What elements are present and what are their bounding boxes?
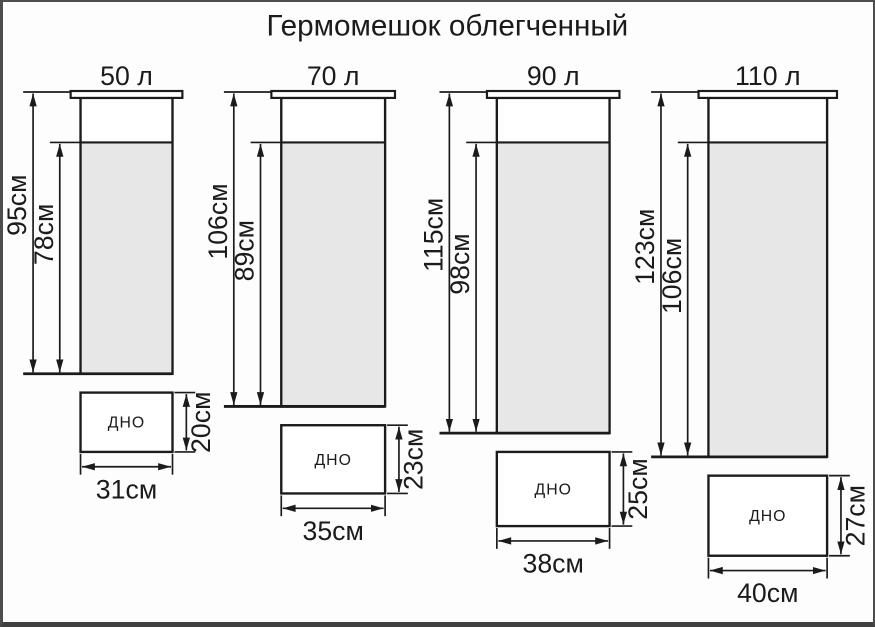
width-dim-label: 40см — [737, 578, 798, 608]
inner-height-label: 78см — [29, 204, 59, 265]
volume-label: 50 л — [100, 61, 153, 91]
bottom-face-label: ДНО — [108, 415, 145, 432]
depth-dim-label: 20см — [186, 392, 216, 453]
outer-height-label: 123см — [630, 209, 660, 285]
outer-height-label: 95см — [3, 175, 32, 236]
bag-fabric-fill — [710, 142, 826, 455]
width-dim-label: 31см — [96, 474, 157, 504]
width-dim-label: 38см — [523, 549, 584, 579]
diagram-title: Гермомешок облегченный — [267, 10, 629, 43]
outer-height-label: 115см — [418, 198, 448, 272]
depth-dim-label: 27см — [841, 485, 871, 546]
roll-top-lid — [487, 91, 620, 98]
volume-label: 90 л — [527, 61, 580, 91]
volume-label: 70 л — [307, 61, 360, 91]
inner-height-label: 98см — [445, 233, 475, 294]
bag-fabric-fill — [82, 142, 171, 372]
bottom-face-label: ДНО — [749, 508, 786, 525]
depth-dim-label: 23см — [399, 429, 429, 490]
roll-top-lid — [71, 91, 183, 98]
bottom-face-label: ДНО — [314, 452, 351, 469]
roll-top-lid — [699, 91, 837, 98]
bag-fabric-fill — [498, 142, 608, 431]
volume-label: 110 л — [735, 61, 801, 91]
bottom-face-label: ДНО — [534, 481, 571, 498]
inner-height-label: 106см — [657, 238, 687, 314]
outer-height-label: 106см — [203, 183, 233, 259]
bag-fabric-fill — [283, 142, 384, 405]
width-dim-label: 35см — [302, 516, 363, 546]
bag-column-1: 50 л95см78смДНО20см31см — [3, 61, 216, 504]
bag-column-4: 110 л123см106смДНО27см40см — [630, 61, 871, 608]
inner-height-label: 89см — [230, 220, 260, 281]
diagram-canvas: Гермомешок облегченный 50 л95см78смДНО20… — [3, 2, 873, 622]
drawing-frame: Гермомешок облегченный 50 л95см78смДНО20… — [0, 0, 875, 627]
depth-dim-label: 25см — [623, 458, 653, 519]
bag-column-2: 70 л106см89смДНО23см35см — [203, 61, 429, 546]
roll-top-lid — [271, 91, 395, 98]
bag-column-3: 90 л115см98смДНО25см38см — [418, 61, 653, 578]
